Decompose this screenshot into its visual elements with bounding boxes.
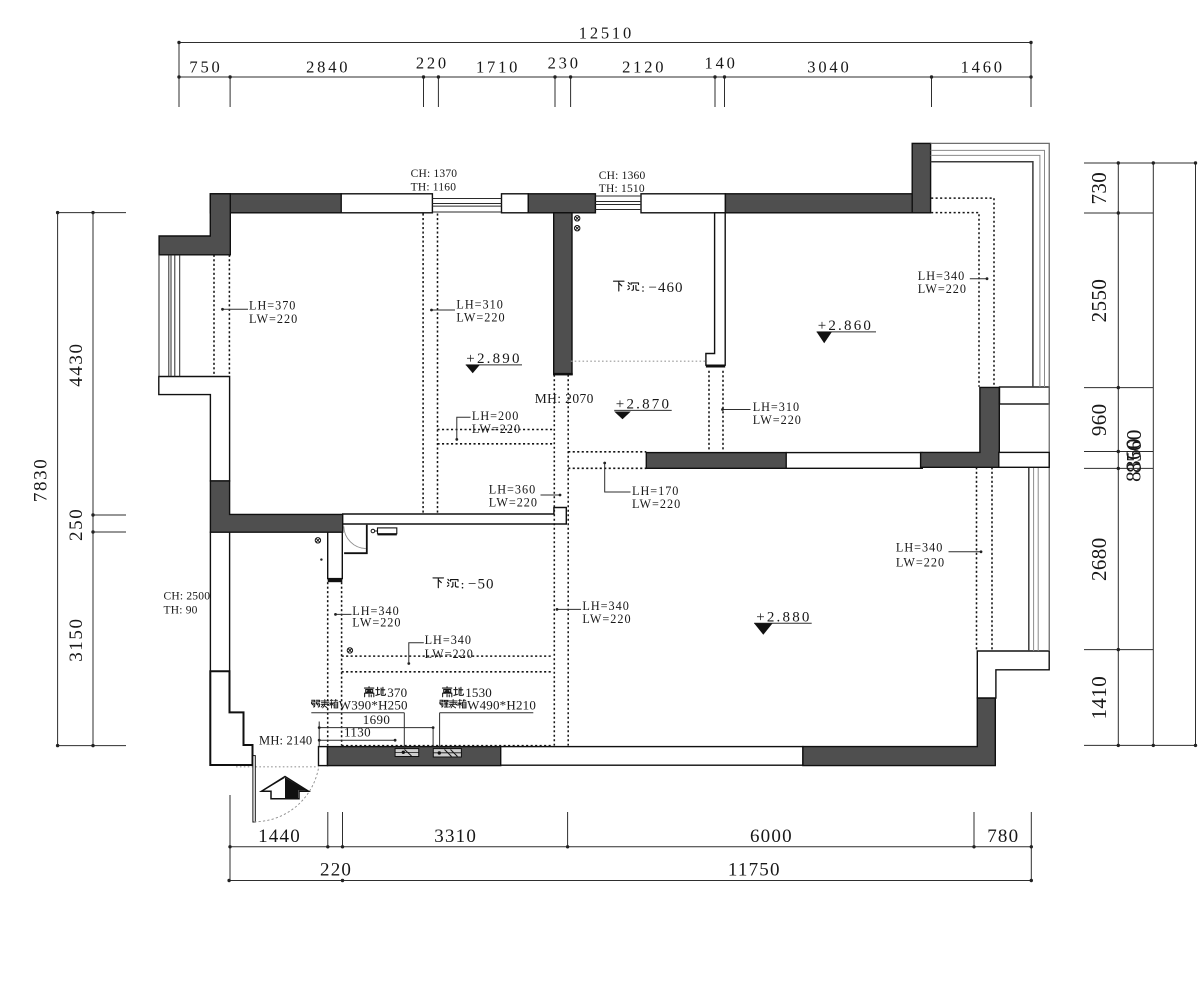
svg-text:140: 140 (705, 54, 738, 73)
svg-text:LW=220: LW=220 (582, 612, 631, 626)
svg-text:LH=340: LH=340 (425, 633, 472, 647)
svg-text:12510: 12510 (579, 24, 634, 43)
svg-text:LH=340: LH=340 (896, 540, 943, 554)
svg-text:1460: 1460 (961, 58, 1005, 77)
svg-text:3310: 3310 (434, 826, 477, 847)
svg-text:LW=220: LW=220 (425, 647, 474, 661)
svg-text:LH=340: LH=340 (582, 599, 629, 613)
svg-text:MH: 2070: MH: 2070 (535, 391, 594, 406)
svg-text:6000: 6000 (750, 826, 793, 847)
svg-text:LH=310: LH=310 (753, 400, 800, 414)
svg-text:W490*H210: W490*H210 (467, 698, 536, 713)
svg-text:LW=220: LW=220 (472, 422, 521, 436)
svg-text:LW=220: LW=220 (456, 311, 505, 325)
svg-text:230: 230 (548, 54, 581, 73)
svg-text:CH: 1360: CH: 1360 (599, 170, 646, 182)
svg-text:LH=200: LH=200 (472, 409, 519, 423)
svg-text:LW=220: LW=220 (352, 616, 401, 630)
svg-text:MH: 2140: MH: 2140 (259, 734, 312, 748)
svg-text:780: 780 (987, 826, 1019, 847)
svg-text:2550: 2550 (1087, 279, 1111, 323)
svg-text:TH: 1510: TH: 1510 (599, 183, 645, 195)
svg-text:LW=220: LW=220 (249, 312, 298, 326)
svg-text:3150: 3150 (66, 617, 87, 661)
svg-text:−50: −50 (468, 577, 494, 593)
svg-text:TH: 1160: TH: 1160 (411, 182, 457, 194)
svg-text:1130: 1130 (344, 724, 371, 739)
svg-text:220: 220 (320, 860, 352, 881)
svg-text:2120: 2120 (622, 58, 666, 77)
svg-text:LW=220: LW=220 (489, 495, 538, 509)
svg-text:CH: 2500: CH: 2500 (164, 591, 211, 603)
svg-text:LW=220: LW=220 (896, 555, 945, 569)
svg-text:11750: 11750 (728, 860, 781, 881)
svg-text:CH: 1370: CH: 1370 (411, 168, 458, 180)
svg-text:1440: 1440 (258, 826, 301, 847)
svg-text:2840: 2840 (306, 58, 350, 77)
svg-text:LW=220: LW=220 (918, 282, 967, 296)
svg-text:LH=370: LH=370 (249, 299, 296, 313)
svg-text:960: 960 (1087, 403, 1111, 436)
svg-text:1710: 1710 (476, 58, 520, 77)
svg-text:3040: 3040 (807, 58, 851, 77)
svg-text:−460: −460 (649, 280, 684, 296)
svg-text:1410: 1410 (1087, 676, 1111, 720)
svg-text:250: 250 (66, 508, 87, 541)
svg-text:750: 750 (189, 58, 222, 77)
svg-text:220: 220 (416, 54, 449, 73)
svg-text:2680: 2680 (1087, 537, 1111, 581)
svg-text:730: 730 (1087, 172, 1111, 205)
svg-text:LH=310: LH=310 (456, 298, 503, 312)
svg-text:LH=170: LH=170 (632, 484, 679, 498)
svg-text:7830: 7830 (31, 458, 52, 502)
svg-text:LW=220: LW=220 (753, 413, 802, 427)
svg-text:4430: 4430 (66, 342, 87, 386)
svg-text:8560: 8560 (1122, 429, 1146, 473)
svg-text:TH: 90: TH: 90 (164, 605, 198, 617)
svg-text:LW=220: LW=220 (632, 497, 681, 511)
svg-text:W390*H250: W390*H250 (339, 698, 408, 713)
